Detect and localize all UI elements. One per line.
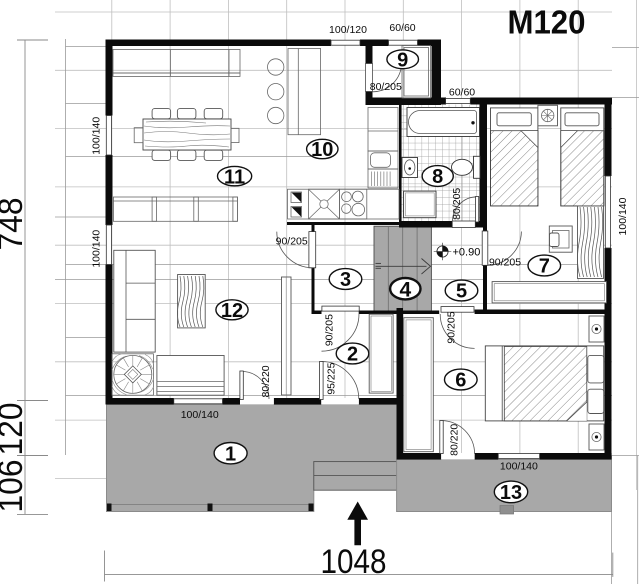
- svg-text:9: 9: [397, 50, 408, 72]
- svg-text:100/140: 100/140: [617, 197, 629, 235]
- svg-text:100/120: 100/120: [329, 24, 367, 36]
- svg-text:1048: 1048: [321, 543, 387, 581]
- svg-text:95/225: 95/225: [326, 362, 338, 394]
- svg-text:80/220: 80/220: [260, 365, 272, 397]
- svg-text:7: 7: [539, 256, 550, 278]
- svg-text:8: 8: [432, 166, 443, 188]
- svg-text:M120: M120: [508, 4, 586, 41]
- svg-text:80/205: 80/205: [451, 188, 463, 220]
- svg-text:12: 12: [221, 300, 243, 322]
- svg-text:13: 13: [500, 482, 522, 504]
- svg-text:10: 10: [311, 139, 333, 161]
- svg-text:80/205: 80/205: [370, 81, 402, 93]
- svg-text:100/140: 100/140: [91, 230, 103, 268]
- svg-text:100/140: 100/140: [91, 117, 103, 155]
- svg-text:90/205: 90/205: [324, 314, 336, 346]
- svg-text:5: 5: [456, 281, 467, 303]
- svg-text:4: 4: [399, 278, 411, 301]
- svg-text:748: 748: [0, 198, 30, 251]
- svg-text:2: 2: [347, 344, 358, 366]
- svg-text:120: 120: [0, 403, 30, 456]
- svg-text:90/205: 90/205: [445, 311, 457, 343]
- svg-text:1: 1: [225, 443, 236, 465]
- svg-text:60/60: 60/60: [389, 22, 415, 34]
- svg-text:+0.90: +0.90: [453, 247, 481, 259]
- svg-text:60/60: 60/60: [449, 86, 475, 98]
- svg-text:90/205: 90/205: [276, 235, 308, 247]
- svg-text:106: 106: [0, 460, 30, 513]
- svg-text:100/140: 100/140: [500, 461, 538, 473]
- svg-text:90/205: 90/205: [489, 257, 521, 269]
- svg-text:6: 6: [455, 370, 466, 392]
- svg-text:100/140: 100/140: [181, 409, 219, 421]
- svg-text:11: 11: [224, 166, 245, 188]
- svg-text:80/220: 80/220: [448, 424, 460, 456]
- svg-text:3: 3: [340, 269, 351, 291]
